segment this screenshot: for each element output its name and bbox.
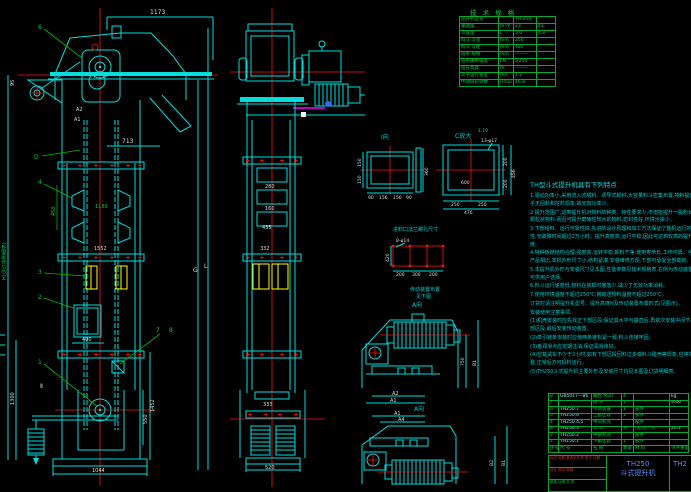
balloon-4: 4 (38, 179, 42, 186)
note-line: (2)牵引链条安装时应使两条链松紧一致,料斗连接牢固。 (530, 335, 691, 343)
note-line: 2.提升范围广,这类提升机对物料的种类、特性要求少,不但能提升一般粉状、小颗粒状… (530, 210, 691, 226)
spec-label: 传动链轮转数 (460, 80, 499, 87)
dim-c-200a: 200 (503, 157, 509, 166)
spec-value: 23 (514, 24, 537, 31)
dim-a2: A2 (76, 107, 83, 113)
dim-c-456: 456 (511, 169, 517, 178)
feed-opening-detail: 进料口法兰螺孔尺寸 8-φ14 420 200 300 200 传动装置布置 见… (385, 226, 444, 300)
spec-unit: m/s (499, 73, 514, 80)
drawing-number: TH2 (670, 456, 691, 491)
spec-label: 链条破断强度 (460, 59, 499, 66)
dim-c-holes: 13-φ17 (481, 138, 497, 144)
dim-l: L (204, 263, 208, 270)
note-line: 订货时请注明提升机型号、提升高度H及传动装置布置形式(见图示)。 (530, 301, 691, 309)
spec-value: TH 250 (514, 17, 537, 24)
bom-header: 材 料 (634, 446, 670, 453)
note-line: 7.使用环境温度不超过250℃,被输送物料温度不超过250℃。 (530, 292, 691, 300)
note-line: 1.驱动功率小,采用流入式喂料、诱导式卸料,大容量料斗密集布置,物料提升时几乎无… (530, 193, 691, 209)
drawing-title: TH250 斗式提升机 (607, 456, 670, 491)
dim-a2v-b1: B1 (501, 460, 507, 466)
spec-value: 3.0 (514, 31, 537, 38)
spec-value: 1.2 (514, 73, 537, 80)
spec-row: 链条 规格mm——— (460, 52, 556, 59)
dim-i-156b: 156 (393, 195, 402, 201)
balloon-1: 1 (38, 359, 42, 366)
view-label-a1: A向 (412, 301, 422, 309)
spec-label: 料斗 斗距 (460, 45, 499, 52)
spec-row: 传动链轮转数r/min46.8 (460, 80, 556, 87)
dim-c-200b: 200 (503, 179, 509, 188)
spec-value (537, 59, 556, 66)
balloon-6: 6 (38, 24, 42, 31)
spec-value: ——— (514, 52, 537, 59)
spec-value: 480 (514, 45, 537, 52)
spec-label: 提升高度 (460, 66, 499, 73)
dim-280: 280 (265, 184, 275, 190)
spec-label: 斗容量 (460, 31, 499, 38)
bom-header-row: 序号代 号名 称数量材 料单件重量 (549, 446, 689, 453)
dim-a2v-a4: A4 (398, 417, 405, 423)
note-line: 6.料斗运行速度低,物料在装卸时撒落少,减少了无效功率消耗。 (530, 283, 691, 291)
spec-value: ≥250 (514, 59, 537, 66)
dim-1173: 1173 (150, 9, 165, 16)
spec-unit (499, 17, 514, 24)
spec-value (537, 17, 556, 24)
label-d: D (34, 154, 39, 161)
balloon-8: 8 (169, 327, 173, 334)
spec-row: 提升机型号TH 250 (460, 17, 556, 24)
drive-note-line2: 见下图 (416, 294, 431, 300)
spec-row: 斗容量L3.04.8 (460, 31, 556, 38)
spec-table: 提升机型号TH 250 输送量m³/h2341 斗容量L3.04.8 料斗 斗宽… (459, 16, 556, 87)
spec-value (537, 66, 556, 73)
dim-feed-200a: 200 (396, 272, 405, 278)
spec-value (537, 73, 556, 80)
side-view-elevation: 280 160 435 332 333 520 (230, 8, 365, 487)
dim-c-600: 600 (461, 180, 470, 186)
drive-note-line1: 传动装置布置 (410, 286, 440, 293)
dim-95: 95 (10, 80, 16, 86)
note-line: (4)空载试车不少于2小时,如有下部区段回料过多或料斗碰壳等现象,应停车调整,正… (530, 352, 691, 368)
dim-1552: 1552 (94, 246, 107, 252)
dim-h-height: H(见订货明细表) (1, 242, 8, 280)
dim-a1v-750: 750 (460, 357, 466, 366)
feature-notes: TH型斗式提升机具有下列特点 1.驱动功率小,采用流入式喂料、诱导式卸料,大容量… (530, 180, 691, 378)
spec-value: 41 (537, 24, 556, 31)
spec-label: 链条 规格 (460, 52, 499, 59)
detail-view-i: I向 150 150 360 90 156 156 90 (357, 133, 430, 201)
dim-450: 450 (51, 206, 57, 216)
note-line: (1)机壳安装时应先找正下部区段,保证其水平与垂直后,再依次安装中间节与上部区段… (530, 318, 691, 334)
parts-list-table: 8GB5017—86螺栓 M204kg 7链 条19.06 6TH250.7传动… (548, 393, 689, 453)
spec-row: 料斗 斗宽mm250 (460, 38, 556, 45)
note-line: 3.下部给料、运行可靠性好,先进的设计原理和加工方法保证了整机运行的可靠性,无故… (530, 226, 691, 249)
spec-row: 提升高度m——— (460, 66, 556, 73)
dim-i-90a: 90 (368, 195, 374, 201)
dim-c-250b: 250 (478, 202, 487, 208)
dim-a1v-a2: A2 (392, 391, 399, 397)
dim-160: 160 (265, 206, 275, 212)
dim-feed-200b: 200 (429, 272, 438, 278)
balloon-3: 3 (38, 269, 42, 276)
spec-value: 4.8 (537, 31, 556, 38)
model-number: TH250 (607, 460, 669, 469)
machine-name: 斗式提升机 (607, 469, 669, 478)
a-view-arrangement-1: A向 A2 A1 750 B1 (362, 301, 478, 404)
dim-i-150b: 150 (357, 175, 363, 184)
dim-332: 332 (260, 246, 270, 252)
spec-label: 料斗 斗宽 (460, 38, 499, 45)
dim-400: 400 (82, 337, 92, 343)
cad-drawing-sheet: { "spec_table": { "title": "技 术 规 格", "r… (0, 0, 691, 491)
spec-unit: kN (499, 59, 514, 66)
dim-520: 520 (265, 465, 275, 471)
dim-333: 333 (263, 402, 273, 408)
left-view-front-elevation: 1173 713 95 A2 A1 H(见订货明细表) 1300 1452 55… (0, 8, 218, 486)
view-label-i: I向 (381, 133, 389, 141)
note-line: 5.本提升机外形与安装尺寸见本图,性能参数见技术规格表,右侧为传动装置布置,可供… (530, 267, 691, 283)
revision-row: 批准 比例 共 张 (549, 480, 606, 491)
note-line: 安装使用注意事项: (530, 310, 691, 318)
dim-i-156a: 156 (379, 195, 388, 201)
dim-713: 713 (122, 138, 134, 145)
spec-value (537, 45, 556, 52)
feed-detail-title: 进料口法兰螺孔尺寸 (393, 226, 438, 233)
note-line: (3)各润滑点应定期注油,保证润滑良好。 (530, 344, 691, 352)
dim-1180: 1180 (95, 204, 108, 210)
dim-a2v-b2: B2 (489, 460, 495, 466)
spec-value (537, 52, 556, 59)
dim-feed-holes: 8-φ14 (396, 238, 409, 244)
spec-value (537, 38, 556, 45)
dim-a1v-a1: A1 (390, 398, 397, 404)
view-label-a2: A向 (414, 405, 424, 413)
dim-1452: 1452 (150, 399, 156, 412)
spec-unit: L (499, 31, 514, 38)
dim-c-250a: 250 (451, 202, 460, 208)
spec-value: 46.8 (514, 80, 537, 87)
bom-header: 单件重量 (670, 446, 689, 453)
bom-header: 序号 (549, 446, 559, 453)
dim-i-150a: 150 (357, 158, 363, 167)
balloon-7: 7 (156, 327, 160, 334)
dim-1300: 1300 (10, 392, 16, 405)
dim-feed-300: 300 (412, 272, 421, 278)
spec-label: 输送量 (460, 24, 499, 31)
spec-value (537, 80, 556, 87)
note-line: (5)TH250斗式提升机主要外形及安装尺寸均见本图及订货明细表。 (530, 369, 691, 377)
detail-view-c: C放大 1:10 13-φ17 600 250 250 476 200 200 … (436, 128, 517, 216)
spec-unit: m (499, 66, 514, 73)
bom-header: 数量 (622, 446, 634, 453)
section-mark-2: Ⅱ (40, 383, 43, 390)
view-label-c: C放大 (455, 132, 471, 140)
dim-g: G (193, 267, 198, 274)
spec-unit: mm (499, 38, 514, 45)
spec-value: 250 (514, 38, 537, 45)
dim-i-90b: 90 (406, 195, 412, 201)
dim-435: 435 (262, 225, 272, 231)
revision-row: 设计 校对 审核 (549, 468, 606, 480)
scale-label-c: 1:10 (478, 128, 488, 134)
revision-table: 标记 处数 更改文件号 签字 日期 设计 校对 审核 批准 比例 共 张 (549, 456, 607, 491)
spec-unit: mm (499, 52, 514, 59)
dim-i-360: 360 (424, 167, 430, 176)
dim-550: 550 (143, 414, 149, 424)
notes-title: TH型斗式提升机具有下列特点 (530, 180, 691, 190)
dim-1044: 1044 (92, 468, 105, 474)
spec-unit: mm (499, 45, 514, 52)
dim-a1v-b1: B1 (472, 360, 478, 366)
dim-c-476: 476 (464, 210, 473, 216)
dim-a1: A1 (74, 117, 81, 123)
revision-row: 标记 处数 更改文件号 签字 日期 (549, 456, 606, 468)
dim-feed-420: 420 (385, 253, 391, 262)
spec-unit: m³/h (499, 24, 514, 31)
spec-label: 提升机型号 (460, 17, 499, 24)
bom-header: 代 号 (559, 446, 592, 453)
spec-row: 料斗 斗距mm480 (460, 45, 556, 52)
spec-row: 链条破断强度kN≥250 (460, 59, 556, 66)
spec-label: 斗子运行速度 (460, 73, 499, 80)
bom-header: 名 称 (592, 446, 622, 453)
spec-unit: r/min (499, 80, 514, 87)
spec-row: 输送量m³/h2341 (460, 24, 556, 31)
spec-row: 斗子运行速度m/s1.2 (460, 73, 556, 80)
a-view-arrangement-2: A向 A1 A4 B2 B1 (362, 405, 507, 484)
spec-value: ——— (514, 66, 537, 73)
balloon-2: 2 (38, 294, 42, 301)
title-block: 标记 处数 更改文件号 签字 日期 设计 校对 审核 批准 比例 共 张 TH2… (548, 455, 691, 492)
note-line: 4.特种板链结构合理,强度高,运转平稳,卸料干净,使用寿命长,工作可靠。与同类产… (530, 250, 691, 266)
